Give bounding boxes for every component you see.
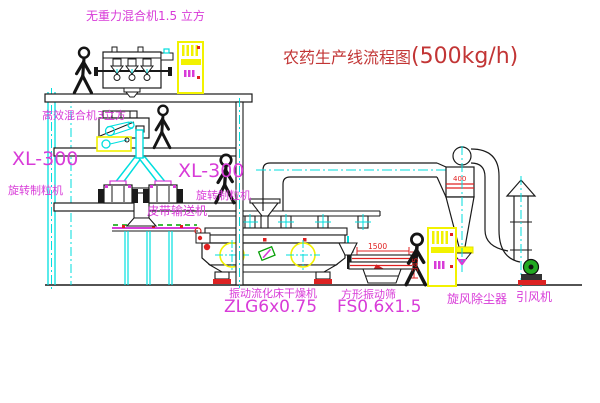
person-figure-top-floor — [74, 48, 91, 93]
dimension-screen-height: 345 — [412, 258, 420, 272]
y-splitter-pipe — [114, 157, 167, 184]
label-belt-conveyor: 皮带输送机 — [147, 205, 207, 217]
granulator-machine-right — [143, 181, 183, 203]
label-dryer-model: ZLG6x0.75 — [224, 299, 317, 316]
label-granulator-left-model: XL-300 — [12, 150, 78, 169]
belt-conveyor — [112, 225, 201, 285]
floor-slab-mid — [54, 148, 237, 156]
title-capacity: (500kg/h) — [411, 44, 518, 69]
label-cyclone: 旋风除尘器 — [447, 293, 507, 305]
granulator-machine-left — [98, 181, 138, 203]
cad-flow-diagram: 农药生产线流程图(500kg/h) 无重力混合机1.5 立方 高效混合机3立方 … — [0, 0, 600, 403]
page-title: 农药生产线流程图(500kg/h) — [283, 46, 518, 68]
dimension-screen-length: 1500 — [368, 243, 387, 251]
exhaust-manifold — [208, 211, 380, 228]
label-gravity-free-mixer: 无重力混合机1.5 立方 — [86, 10, 205, 22]
label-screen-model: FS0.6x1.5 — [337, 299, 421, 316]
control-cabinet-upper — [178, 42, 203, 93]
floor-slab-top — [45, 94, 252, 102]
person-figure-mid-floor — [154, 106, 170, 148]
control-cabinet-lower — [428, 228, 456, 286]
label-mixer2: 高效混合机3立方 — [42, 110, 126, 121]
label-granulator-mid-name: 旋转制粒机 — [196, 190, 251, 201]
label-fan: 引风机 — [516, 291, 552, 303]
label-granulator-left-name: 旋转制粒机 — [8, 185, 63, 196]
gravity-free-mixer — [94, 47, 173, 97]
title-text: 农药生产线流程图 — [283, 48, 411, 67]
induced-draft-fan — [518, 260, 546, 286]
label-granulator-mid-model: XL-300 — [178, 162, 244, 181]
fluid-bed-dryer — [196, 228, 353, 284]
mixer-discharge-pipe — [136, 130, 143, 158]
dimension-cyclone-dia: 400 — [453, 176, 466, 183]
exhaust-duct-to-fan — [471, 149, 520, 262]
